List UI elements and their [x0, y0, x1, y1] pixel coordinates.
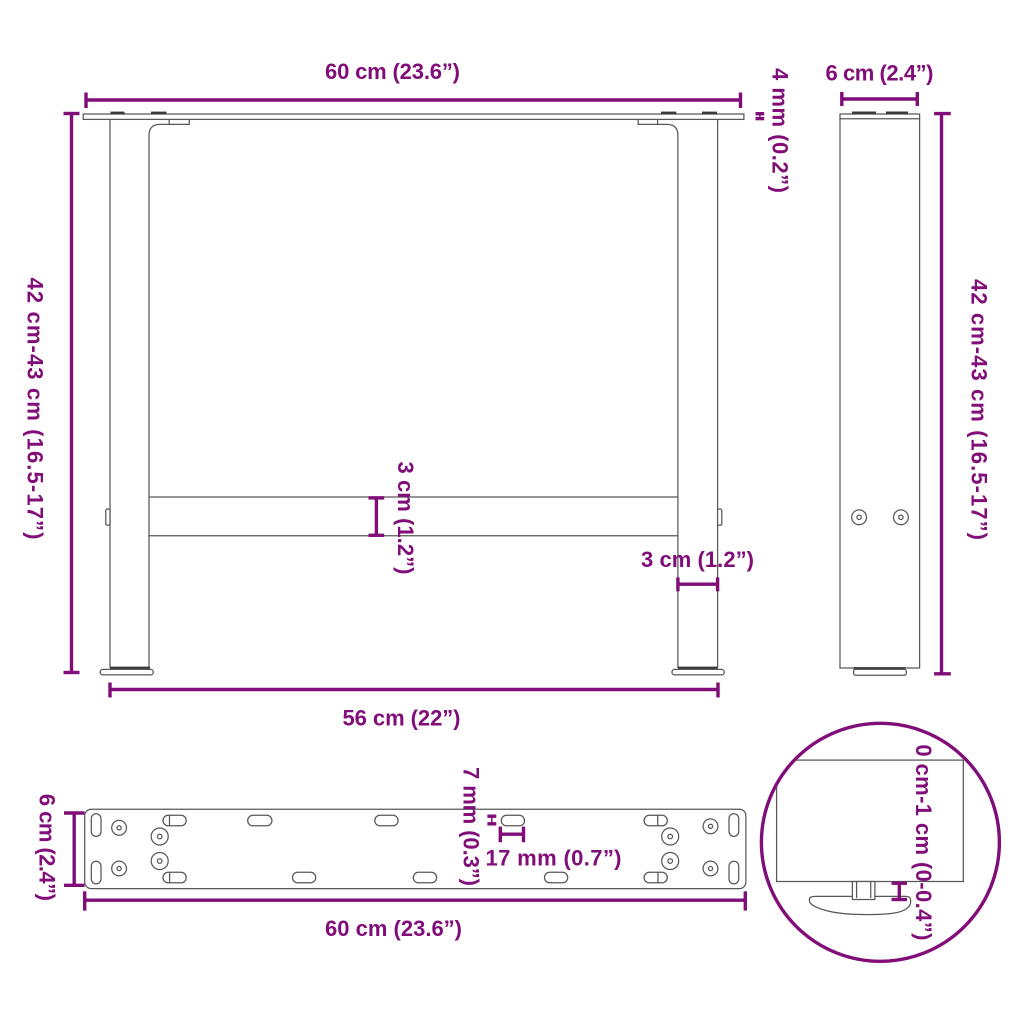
svg-text:3 cm (1.2”): 3 cm (1.2”)	[393, 462, 418, 575]
svg-text:17 mm (0.7”): 17 mm (0.7”)	[486, 846, 622, 871]
svg-text:6 cm (2.4”): 6 cm (2.4”)	[826, 61, 934, 86]
svg-text:3 cm (1.2”): 3 cm (1.2”)	[641, 547, 754, 572]
svg-text:42 cm-43 cm (16.5-17”): 42 cm-43 cm (16.5-17”)	[967, 279, 992, 540]
svg-text:0 cm-1 cm (0-0.4”): 0 cm-1 cm (0-0.4”)	[911, 744, 936, 940]
svg-text:4 mm (0.2”): 4 mm (0.2”)	[768, 68, 793, 193]
svg-text:42 cm-43 cm (16.5-17”): 42 cm-43 cm (16.5-17”)	[23, 278, 48, 540]
svg-text:6 cm (2.4”): 6 cm (2.4”)	[35, 794, 60, 901]
svg-text:60 cm (23.6”): 60 cm (23.6”)	[325, 916, 462, 941]
svg-text:7 mm (0.3”): 7 mm (0.3”)	[459, 767, 484, 886]
svg-text:56 cm (22”): 56 cm (22”)	[343, 706, 461, 731]
svg-text:60 cm (23.6”): 60 cm (23.6”)	[325, 59, 460, 84]
